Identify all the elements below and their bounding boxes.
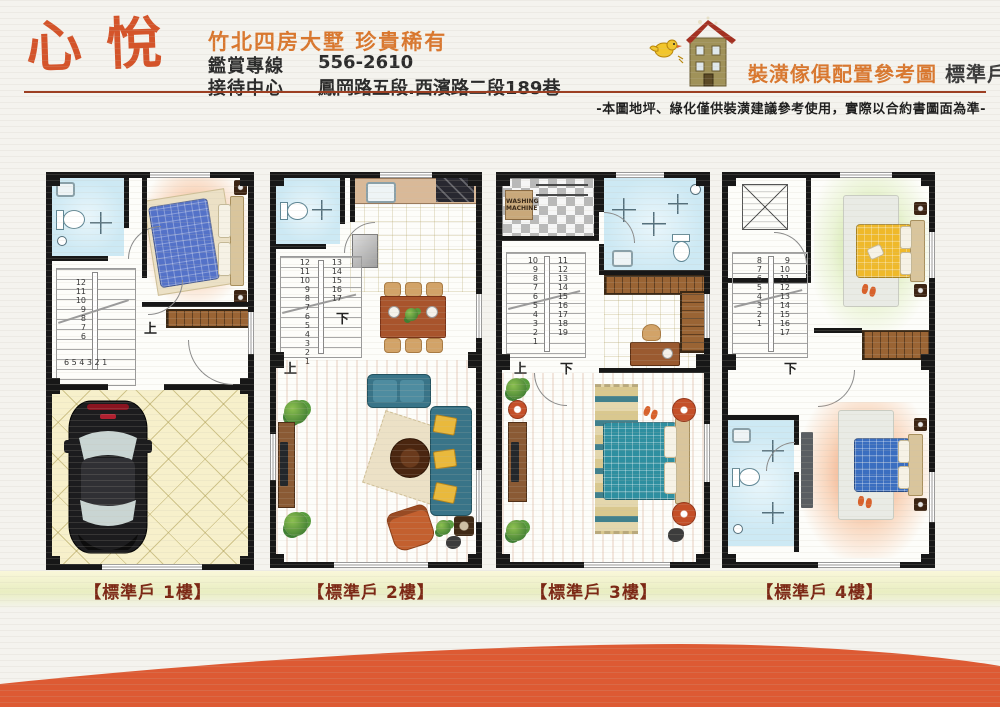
pillow (898, 466, 910, 489)
drying-rod (536, 194, 588, 196)
tub-symbol (668, 194, 688, 214)
headboard (230, 196, 244, 286)
down-label: 下 (336, 308, 349, 327)
seat-cushion (373, 380, 397, 402)
washing-machine: WASHING MACHINE (505, 190, 533, 220)
toilet (63, 210, 85, 229)
tv (280, 442, 288, 486)
plant (506, 378, 527, 399)
pouf (672, 502, 696, 526)
stair-numbers: 10 9 8 7 6 5 4 3 2 1 (524, 256, 538, 346)
window (704, 424, 710, 482)
brand-logo: 心悅 (25, 15, 187, 77)
floorplan-3f: WASHING MACHINE 10 9 8 7 6 5 4 3 2 1 11 … (496, 172, 710, 568)
wall (704, 172, 710, 568)
tub-symbol (90, 212, 112, 234)
wall-pier (46, 378, 60, 394)
plan-title: 裝潢傢俱配置參考圖標準戶 (748, 58, 1000, 87)
window (150, 172, 210, 178)
wall-pier (722, 172, 736, 186)
wall (722, 172, 728, 568)
stair-numbers: 9 10 11 12 13 14 15 16 17 (776, 256, 790, 337)
window (476, 470, 482, 522)
wall-pier (240, 378, 254, 394)
wall (728, 415, 794, 420)
shower-icon (733, 524, 743, 534)
stair-rail (768, 256, 774, 352)
sink (732, 428, 751, 443)
centerpiece-plant (405, 308, 418, 321)
garage-door (102, 564, 202, 570)
bird-icon (650, 40, 683, 63)
skylight-shaft (742, 184, 788, 230)
sink (612, 250, 633, 267)
dining-chair (426, 282, 443, 297)
nightstand (914, 498, 927, 511)
toilet (673, 241, 690, 262)
window (704, 294, 710, 338)
wall-pier (468, 554, 482, 568)
wall (496, 172, 502, 568)
pillow (218, 242, 231, 276)
wall-pier (496, 554, 510, 568)
wall-pier (240, 556, 254, 570)
wall (276, 244, 326, 249)
wall-pier (270, 172, 284, 186)
stair-numbers: 13 14 15 16 17 (328, 258, 342, 303)
dining-chair (384, 338, 401, 353)
window (584, 562, 670, 568)
center-row: 接待中心 鳳岡路五段.西濱路二段189巷 (208, 74, 560, 100)
stair-numbers: 6 5 4 3 2 1 (64, 358, 130, 367)
wave-decoration (0, 600, 1000, 707)
wall-pier (270, 352, 284, 368)
pillow (898, 440, 910, 463)
nightstand (914, 202, 927, 215)
wall (52, 256, 108, 261)
plant (284, 512, 308, 536)
closet (166, 309, 252, 328)
wall-pier (46, 172, 60, 186)
wall (340, 178, 345, 224)
window (840, 172, 892, 178)
pouf (508, 400, 527, 419)
center-label: 接待中心 (208, 74, 318, 100)
kitchen-sink (366, 182, 396, 203)
down-label: 下 (784, 358, 797, 377)
wall-pier (468, 352, 482, 368)
floorplan-2f: 12 11 10 9 8 7 6 5 4 3 2 1 13 14 15 16 1… (270, 172, 482, 568)
pillow (900, 252, 912, 275)
window (380, 172, 432, 178)
wall-pier (921, 172, 935, 186)
stair-rail (318, 260, 324, 354)
pillow (900, 226, 912, 249)
stair-numbers: 12 11 10 9 8 7 6 5 4 3 2 1 (296, 258, 310, 366)
wall-pier (921, 554, 935, 568)
drying-rod (536, 184, 588, 186)
plan-title-unit: 標準戶 (945, 62, 1000, 86)
wall-tv (801, 432, 813, 508)
wall-pier (46, 556, 60, 570)
toilet (739, 468, 760, 486)
stair-numbers: 12 11 10 9 8 7 6 (72, 278, 86, 341)
floorplan-4f: 8 7 6 5 4 3 2 1 9 10 11 12 13 14 15 16 1… (722, 172, 935, 568)
wall (124, 178, 129, 228)
wall (270, 172, 276, 568)
wall-pier (240, 172, 254, 186)
plant (506, 520, 527, 541)
wall-pier (921, 354, 935, 370)
plant (436, 520, 451, 535)
header-divider (24, 91, 986, 93)
wall-pier (722, 354, 736, 370)
coffee-table (390, 438, 430, 478)
wall (814, 328, 862, 333)
window (929, 232, 935, 278)
tub-symbol (762, 502, 784, 524)
headboard (675, 418, 690, 504)
wall (599, 178, 604, 212)
plan-title-main: 裝潢傢俱配置參考圖 (748, 62, 937, 86)
stair-rail (544, 256, 550, 352)
side-table (454, 516, 474, 536)
plate (388, 306, 400, 318)
stair-numbers: 11 12 13 14 15 16 17 18 19 (554, 256, 568, 337)
window (929, 472, 935, 522)
dining-chair (405, 338, 422, 353)
window (818, 562, 900, 568)
dining-chair (405, 282, 422, 297)
toilet (287, 202, 308, 220)
stair-numbers: 8 7 6 5 4 3 2 1 (748, 256, 762, 328)
wall-pier (496, 172, 510, 186)
tub-symbol (312, 200, 332, 220)
wall (794, 415, 799, 445)
nightstand (914, 418, 927, 431)
wall-pier (696, 554, 710, 568)
floorplan-1f: 12 11 10 9 8 7 6 6 5 4 3 2 1 上 (46, 172, 254, 570)
seat-cushion (400, 380, 424, 402)
desk-chair (642, 324, 661, 341)
window (616, 172, 664, 178)
wall (722, 172, 935, 178)
headboard (910, 220, 925, 282)
flyer-page: 心悅 竹北四房大墅 珍貴稀有 鑑賞專線 556-2610 接待中心 鳳岡路五段.… (0, 0, 1000, 707)
pouf (672, 398, 696, 422)
loveseat (367, 374, 431, 408)
window (248, 312, 254, 354)
nightstand (914, 284, 927, 297)
wall (502, 236, 594, 241)
wall-pier (468, 172, 482, 186)
pillow (664, 462, 677, 494)
tv (511, 442, 519, 482)
house-illustration (648, 14, 748, 90)
wall-pier (496, 354, 510, 370)
wall (794, 472, 799, 552)
car (64, 398, 152, 556)
center-address: 鳳岡路五段.西濱路二段189巷 (318, 74, 560, 100)
up-label: 上 (144, 318, 157, 337)
dining-chair (384, 282, 401, 297)
pillow (218, 204, 231, 238)
headboard (908, 434, 923, 496)
desk-lamp (662, 348, 673, 359)
entry-door-arc (188, 340, 233, 385)
wall-pier (270, 554, 284, 568)
window (476, 294, 482, 338)
wall-pier (722, 554, 736, 568)
wall (46, 172, 52, 570)
plant (284, 400, 308, 424)
pillow (664, 426, 677, 458)
plate (426, 306, 438, 318)
wall (270, 172, 482, 178)
window (334, 562, 428, 568)
shower-icon (57, 236, 67, 246)
wall (350, 178, 355, 222)
wall (248, 172, 254, 570)
pillow (433, 414, 458, 436)
wall (142, 178, 147, 278)
wall (496, 172, 710, 178)
wall-pier (696, 172, 710, 186)
wall-pier (696, 354, 710, 370)
window (270, 434, 276, 480)
dining-chair (426, 338, 443, 353)
tub-symbol (642, 212, 666, 236)
pillow (433, 449, 457, 470)
stair-rail (92, 272, 98, 370)
disclaimer: -本圖地坪、綠化僅供裝潢建議參考使用，實際以合約書圖面為準- (596, 98, 986, 117)
